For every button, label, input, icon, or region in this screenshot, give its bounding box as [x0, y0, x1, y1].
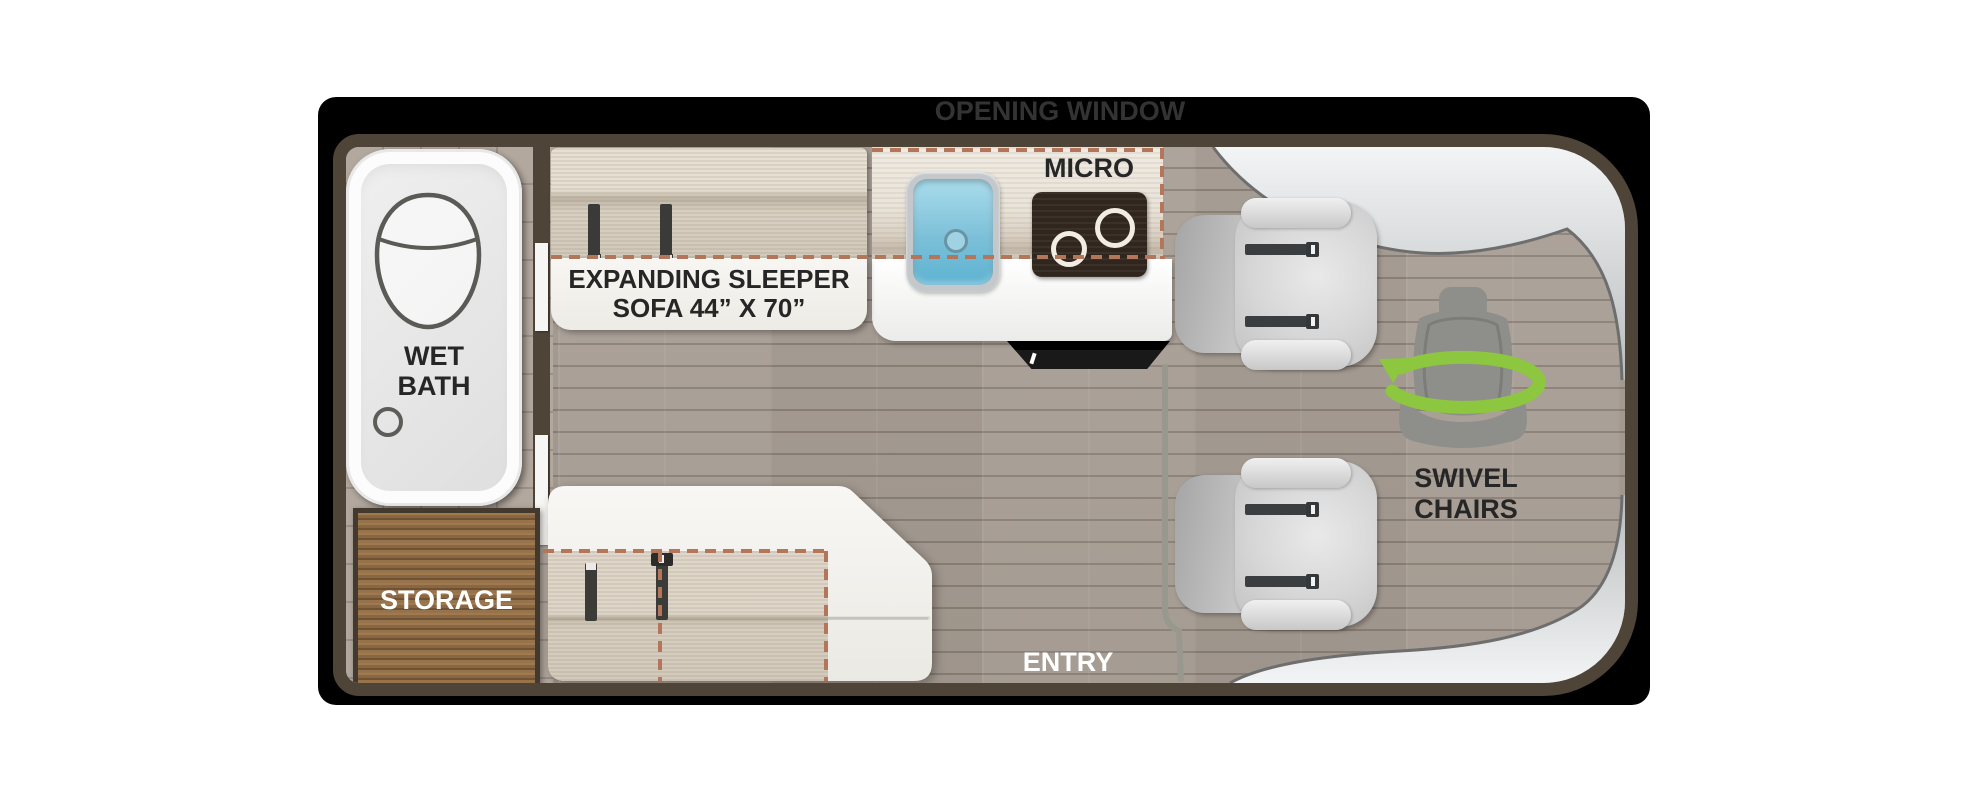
sleeper-sofa-seat — [551, 148, 867, 258]
burner-icon — [1051, 231, 1087, 267]
entry-door-strip — [397, 683, 1167, 691]
entry-label: ENTRY — [1006, 647, 1130, 677]
seatbelt-icon — [1245, 504, 1307, 515]
bed-dashed-line — [824, 551, 828, 681]
wet-bath: WET BATH — [346, 149, 522, 506]
expansion-dashed-line — [551, 255, 1165, 259]
seatbelt-icon — [1245, 244, 1307, 255]
stove-icon — [1032, 192, 1147, 277]
wet-bath-label-line2: BATH — [346, 371, 522, 401]
floorplan-panel: OPENING WINDOW — [318, 97, 1650, 705]
sleeper-label-line1: EXPANDING SLEEPER — [568, 265, 849, 294]
counter-dashed-line — [872, 148, 1164, 152]
tv-icon — [1007, 341, 1170, 369]
swivel-chairs-label: SWIVEL CHAIRS — [1400, 463, 1532, 525]
seatbelt-icon — [588, 204, 600, 258]
swivel-seat-icon — [1377, 283, 1549, 449]
wet-bath-label-line1: WET — [346, 341, 522, 371]
swivel-chair — [1175, 458, 1377, 630]
mattress-crease — [548, 617, 928, 620]
chair-armrest — [1241, 340, 1351, 370]
chair-armrest — [1241, 458, 1351, 488]
seatbelt-icon — [660, 204, 672, 258]
storage-label: STORAGE — [380, 585, 513, 615]
sleeper-sofa-mattress: EXPANDING SLEEPER SOFA 44” X 70” — [551, 258, 867, 330]
sleeper-label-line2: SOFA 44” X 70” — [613, 294, 806, 323]
seatbelt-icon — [1245, 576, 1307, 587]
swivel-chair — [1175, 198, 1377, 370]
micro-label: MICRO — [1029, 153, 1149, 183]
chair-armrest — [1241, 600, 1351, 630]
storage-cabinet: STORAGE — [353, 508, 540, 691]
bath-door-panel — [535, 243, 548, 331]
bed-dashed-line — [543, 549, 829, 553]
swivel-chairs-label-line2: CHAIRS — [1400, 494, 1532, 525]
burner-icon — [1095, 208, 1135, 248]
floorplan-stage: OPENING WINDOW — [0, 0, 1961, 800]
sink-drain-icon — [944, 229, 968, 253]
toilet-icon — [372, 191, 484, 333]
van-outline: WET BATH STORAGE EXPANDING SLEEPER SOFA … — [333, 134, 1638, 696]
seatbelt-icon — [585, 563, 597, 621]
wet-bath-label: WET BATH — [346, 341, 522, 401]
flush-button-icon — [373, 407, 403, 437]
chair-armrest — [1241, 198, 1351, 228]
counter-dashed-line — [1160, 148, 1164, 259]
swivel-chairs-label-line1: SWIVEL — [1400, 463, 1532, 494]
opening-window-strip — [846, 135, 1208, 143]
seatbelt-icon — [1245, 316, 1307, 327]
sink-basin — [913, 179, 993, 285]
bed-dashed-line — [658, 551, 662, 681]
sink-icon — [906, 172, 1000, 292]
opening-window-label: OPENING WINDOW — [930, 96, 1190, 126]
